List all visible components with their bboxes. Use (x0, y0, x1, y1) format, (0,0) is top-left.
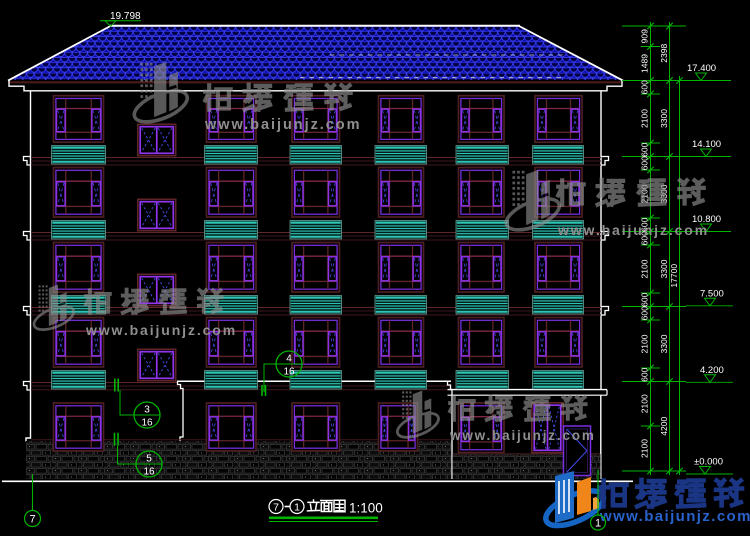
svg-text:4.200: 4.200 (700, 365, 724, 376)
svg-text:±0.000: ±0.000 (694, 457, 723, 468)
svg-text:3300: 3300 (659, 334, 669, 353)
svg-text:3: 3 (144, 405, 150, 416)
svg-text:14.100: 14.100 (692, 139, 721, 150)
svg-text:7: 7 (273, 502, 279, 514)
svg-text:4200: 4200 (659, 417, 669, 436)
svg-text:2100: 2100 (640, 439, 650, 458)
svg-text:600: 600 (640, 142, 650, 156)
svg-text:1:100: 1:100 (349, 501, 383, 516)
svg-text:2100: 2100 (640, 394, 650, 413)
svg-text:1: 1 (294, 502, 300, 514)
svg-text:www.baijunjz.com: www.baijunjz.com (557, 222, 709, 238)
svg-text:5: 5 (146, 454, 152, 465)
svg-text:16: 16 (283, 367, 295, 378)
svg-text:7: 7 (29, 514, 35, 526)
svg-text:1: 1 (595, 518, 601, 530)
svg-text:600: 600 (640, 80, 650, 94)
svg-text:909: 909 (640, 29, 650, 43)
svg-text:2100: 2100 (640, 109, 650, 128)
svg-text:17700: 17700 (669, 264, 679, 288)
svg-text:600: 600 (640, 156, 650, 170)
svg-text:17.400: 17.400 (687, 63, 716, 74)
svg-text:3300: 3300 (659, 259, 669, 278)
svg-text:3300: 3300 (659, 109, 669, 128)
svg-text:2100: 2100 (640, 334, 650, 353)
svg-text:4: 4 (286, 354, 292, 365)
svg-text:www.baijunjz.com: www.baijunjz.com (599, 508, 750, 525)
svg-text:www.baijunjz.com: www.baijunjz.com (204, 117, 361, 133)
svg-text:600: 600 (640, 306, 650, 320)
svg-text:600: 600 (640, 367, 650, 381)
svg-text:7.500: 7.500 (700, 288, 724, 299)
svg-text:16: 16 (143, 467, 155, 478)
svg-text:2398: 2398 (659, 44, 669, 63)
svg-text:www.baijunjz.com: www.baijunjz.com (449, 428, 596, 443)
svg-text:1489: 1489 (640, 54, 650, 73)
svg-text:2100: 2100 (640, 259, 650, 278)
svg-text:www.baijunjz.com: www.baijunjz.com (85, 322, 237, 338)
svg-text:600: 600 (640, 292, 650, 306)
svg-text:16: 16 (141, 418, 153, 429)
